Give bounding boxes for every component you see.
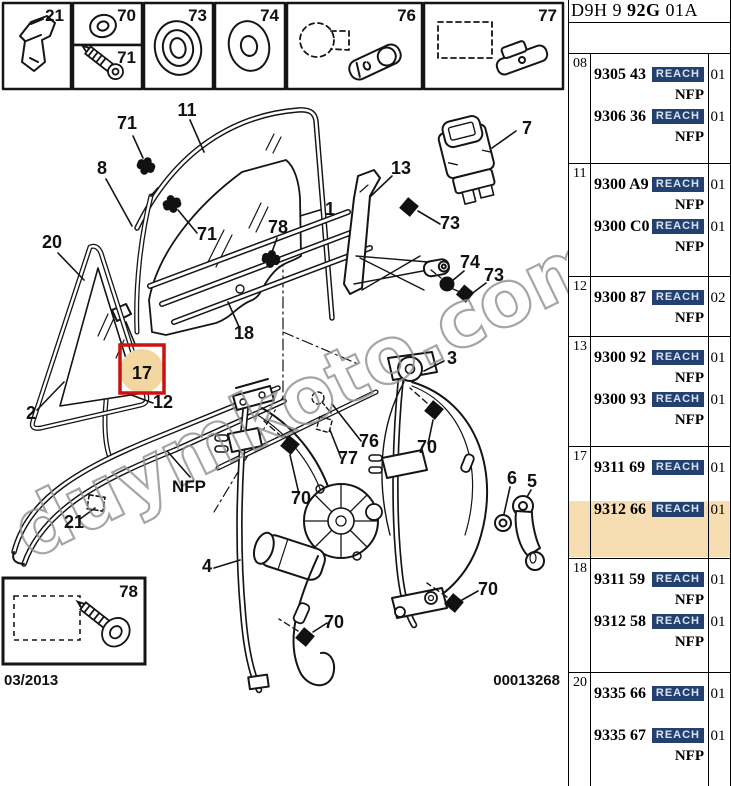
callout-12: 12 — [153, 392, 173, 412]
reach-badge[interactable]: REACH — [652, 502, 704, 517]
nfp-note: NFP — [172, 477, 206, 496]
part-number: 9300 87 — [594, 289, 646, 307]
callout-1: 1 — [325, 199, 335, 219]
table-line — [568, 276, 731, 277]
callout-74: 74 — [460, 252, 480, 272]
nfp-flag: NFP — [675, 239, 704, 256]
reach-badge[interactable]: REACH — [652, 219, 704, 234]
reach-badge[interactable]: REACH — [652, 290, 704, 305]
page-code-bold: 92G — [627, 0, 661, 20]
callout-20: 20 — [42, 232, 62, 252]
callout-3: 3 — [447, 348, 457, 368]
legend-21: 21 — [45, 6, 64, 25]
callout-2: 2 — [26, 403, 36, 423]
part-qty: 01 — [707, 109, 729, 126]
table-line — [568, 163, 731, 164]
legend-78: 78 — [119, 582, 138, 601]
callout-5: 5 — [527, 471, 537, 491]
part-number: 9312 58 — [594, 613, 646, 631]
table-line — [568, 558, 731, 559]
part-number: 9300 A9 — [594, 176, 649, 194]
part-row[interactable]: 9300 93 REACH 01 — [568, 391, 731, 412]
exploded-diagram: duymkoto.com 17 71 11 8 1 71 78 13 7 73 … — [0, 0, 568, 700]
callout-18: 18 — [234, 323, 254, 343]
part-row[interactable]: 9335 67 REACH 01 — [568, 727, 731, 748]
part-number: 9311 59 — [594, 571, 645, 589]
document-number: 00013268 — [493, 672, 560, 689]
part-qty: 01 — [707, 686, 729, 703]
part-qty: 01 — [707, 460, 729, 477]
callout-77: 77 — [338, 448, 358, 468]
part-qty: 02 — [707, 290, 729, 307]
part-number: 9306 36 — [594, 108, 646, 126]
legend-74: 74 — [260, 6, 279, 25]
legend-73: 73 — [188, 6, 207, 25]
parts-catalog-page: duymkoto.com 17 71 11 8 1 71 78 13 7 73 … — [0, 0, 731, 786]
group-column-divider — [590, 53, 591, 786]
part-row[interactable]: 9335 66 REACH 01 — [568, 685, 731, 706]
window-switch — [435, 113, 502, 206]
legend-71: 71 — [117, 48, 136, 67]
table-line — [568, 446, 731, 447]
callout-70d: 70 — [324, 612, 344, 632]
callout-7: 7 — [522, 118, 532, 138]
callout-13: 13 — [391, 158, 411, 178]
nfp-flag: NFP — [675, 412, 704, 429]
legend-76: 76 — [397, 6, 416, 25]
part-qty: 01 — [707, 728, 729, 745]
callout-6: 6 — [507, 468, 517, 488]
crank-handle — [513, 496, 544, 570]
reach-badge[interactable]: REACH — [652, 350, 704, 365]
part-number: 9335 67 — [594, 727, 646, 745]
part-row[interactable]: 9300 C0 REACH 01 — [568, 218, 731, 239]
parts-table: D9H 9 92G 01A 08 11 12 13 17 18 20 9305 … — [568, 0, 731, 786]
nfp-flag: NFP — [675, 129, 704, 146]
callout-70c: 70 — [478, 579, 498, 599]
nfp-flag: NFP — [675, 310, 704, 327]
reach-badge[interactable]: REACH — [652, 460, 704, 475]
legend-70: 70 — [117, 6, 136, 25]
part-number: 9300 92 — [594, 349, 646, 367]
callout-11: 11 — [177, 100, 196, 120]
nfp-flag: NFP — [675, 634, 704, 651]
part-row-selected[interactable]: 9312 66 REACH 01 — [568, 501, 731, 522]
reach-badge[interactable]: REACH — [652, 177, 704, 192]
revision-date: 03/2013 — [4, 672, 58, 689]
callout-73a: 73 — [440, 213, 460, 233]
part-number: 9300 93 — [594, 391, 646, 409]
callout-8: 8 — [97, 158, 107, 178]
callout-17: 17 — [132, 363, 152, 383]
part-number: 9335 66 — [594, 685, 646, 703]
table-line — [568, 53, 731, 54]
legend-row — [3, 3, 563, 89]
part-number: 9312 66 — [594, 501, 646, 519]
bracket-13 — [344, 170, 450, 294]
callout-70a: 70 — [291, 488, 311, 508]
part-qty: 01 — [707, 350, 729, 367]
callout-71b: 71 — [197, 224, 217, 244]
part-qty: 01 — [707, 392, 729, 409]
part-row[interactable]: 9312 58 REACH 01 — [568, 613, 731, 634]
part-number: 9305 43 — [594, 66, 646, 84]
table-line — [568, 22, 731, 23]
callout-21: 21 — [64, 512, 84, 532]
part-row[interactable]: 9300 87 REACH 02 — [568, 289, 731, 310]
nfp-flag: NFP — [675, 370, 704, 387]
reach-badge[interactable]: REACH — [652, 392, 704, 407]
reach-badge[interactable]: REACH — [652, 686, 704, 701]
part-row[interactable]: 9305 43 REACH 01 — [568, 66, 731, 87]
page-code: D9H 9 92G 01A — [571, 0, 731, 22]
callout-73b: 73 — [484, 265, 504, 285]
page-code-suffix: 01A — [661, 0, 699, 20]
selected-item-marker[interactable]: 17 — [120, 345, 164, 393]
qty-column-divider — [708, 53, 709, 786]
nfp-flag: NFP — [675, 87, 704, 104]
callout-71a: 71 — [117, 113, 137, 133]
callout-70b: 70 — [417, 437, 437, 457]
part-row[interactable]: 9300 92 REACH 01 — [568, 349, 731, 370]
part-row[interactable]: 9311 69 REACH 01 — [568, 459, 731, 480]
part-qty: 01 — [707, 219, 729, 236]
nfp-flag: NFP — [675, 197, 704, 214]
part-row[interactable]: 9300 A9 REACH 01 — [568, 176, 731, 197]
reach-badge[interactable]: REACH — [652, 109, 704, 124]
page-code-prefix: D9H 9 — [571, 0, 627, 20]
callout-76: 76 — [359, 431, 379, 451]
callout-4: 4 — [202, 556, 212, 576]
part-qty: 01 — [707, 614, 729, 631]
part-qty: 01 — [707, 572, 729, 589]
legend-77: 77 — [538, 6, 557, 25]
reach-badge[interactable]: REACH — [652, 67, 704, 82]
nfp-flag: NFP — [675, 748, 704, 765]
table-line — [568, 336, 731, 337]
part-number: 9300 C0 — [594, 218, 650, 236]
part-number: 9311 69 — [594, 459, 645, 477]
part-qty: 01 — [707, 502, 729, 519]
part-qty: 01 — [707, 67, 729, 84]
table-line — [568, 672, 731, 673]
nfp-flag: NFP — [675, 592, 704, 609]
part-row[interactable]: 9311 59 REACH 01 — [568, 571, 731, 592]
part-qty: 01 — [707, 177, 729, 194]
part-row[interactable]: 9306 36 REACH 01 — [568, 108, 731, 129]
reach-badge[interactable]: REACH — [652, 614, 704, 629]
crank-washer — [495, 515, 511, 531]
reach-badge[interactable]: REACH — [652, 572, 704, 587]
callout-78: 78 — [268, 217, 288, 237]
reach-badge[interactable]: REACH — [652, 728, 704, 743]
